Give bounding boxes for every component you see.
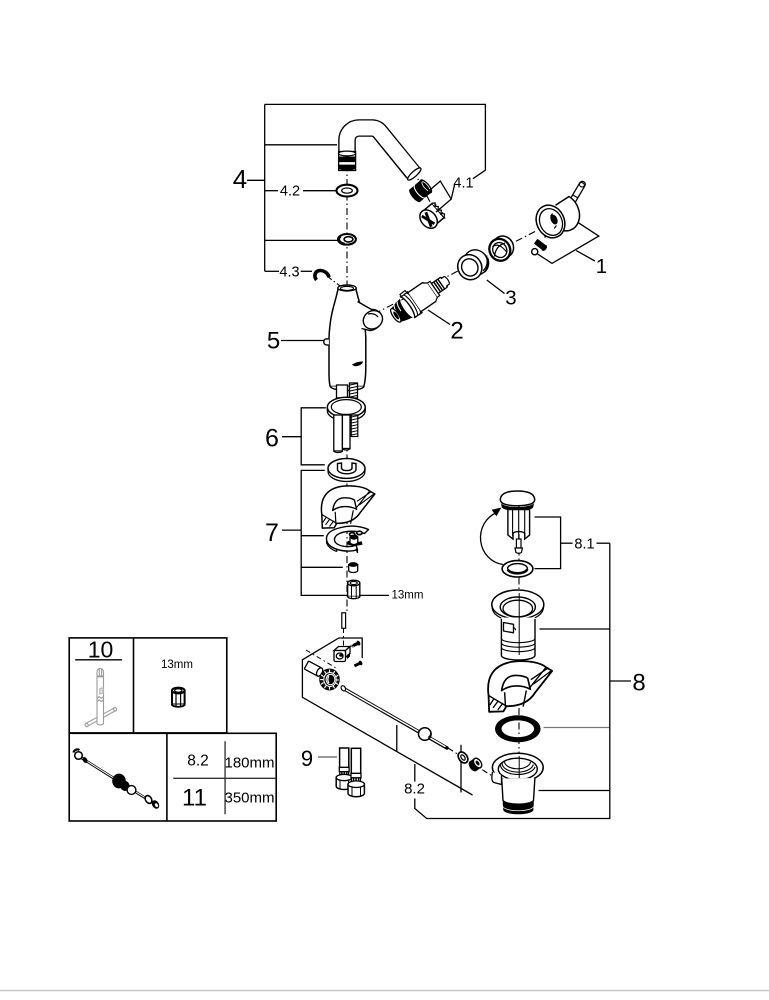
svg-text:8: 8 bbox=[632, 670, 645, 697]
svg-text:2: 2 bbox=[450, 318, 463, 345]
svg-text:6: 6 bbox=[265, 424, 279, 452]
svg-text:10: 10 bbox=[88, 637, 114, 663]
svg-text:4.1: 4.1 bbox=[453, 176, 473, 192]
svg-text:7: 7 bbox=[265, 519, 279, 547]
svg-text:13mm: 13mm bbox=[161, 659, 193, 671]
svg-text:8.1: 8.1 bbox=[574, 537, 594, 553]
svg-text:180mm: 180mm bbox=[224, 755, 274, 772]
svg-text:350mm: 350mm bbox=[224, 790, 274, 807]
svg-text:3: 3 bbox=[505, 287, 516, 310]
svg-text:9: 9 bbox=[301, 746, 313, 771]
svg-text:4.2: 4.2 bbox=[280, 184, 300, 200]
svg-text:11: 11 bbox=[182, 785, 207, 812]
svg-text:8.2: 8.2 bbox=[404, 781, 425, 798]
svg-text:1: 1 bbox=[596, 255, 607, 278]
svg-text:13mm: 13mm bbox=[392, 590, 424, 602]
svg-text:4: 4 bbox=[233, 164, 247, 194]
svg-text:8.2: 8.2 bbox=[187, 753, 209, 770]
svg-text:4.3: 4.3 bbox=[279, 265, 299, 281]
svg-text:5: 5 bbox=[267, 328, 280, 355]
